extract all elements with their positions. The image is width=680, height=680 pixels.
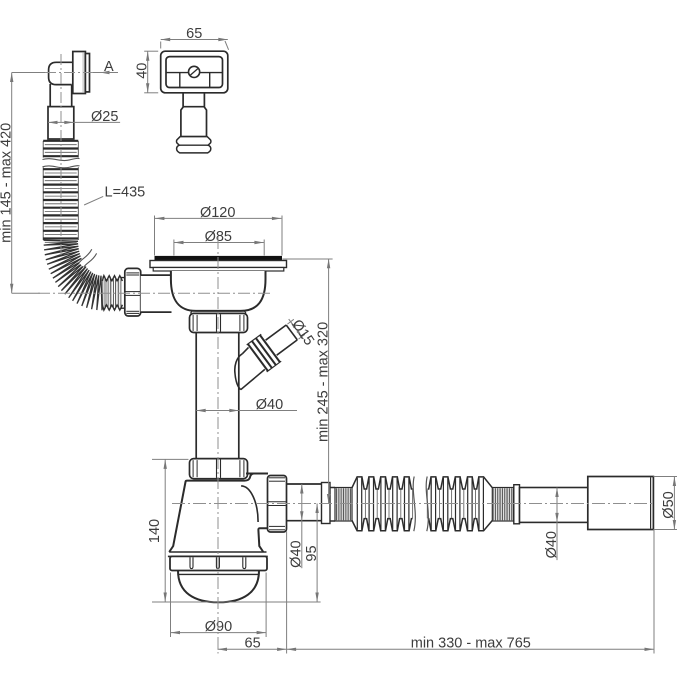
svg-text:Ø40: Ø40 bbox=[289, 540, 305, 567]
svg-text:min 330 - max 765: min 330 - max 765 bbox=[411, 636, 531, 652]
svg-text:65: 65 bbox=[245, 636, 261, 652]
svg-text:40: 40 bbox=[135, 63, 151, 79]
svg-text:Ø40: Ø40 bbox=[256, 397, 283, 413]
svg-text:95: 95 bbox=[304, 545, 320, 561]
svg-text:Ø120: Ø120 bbox=[200, 205, 235, 221]
svg-text:140: 140 bbox=[147, 519, 163, 543]
svg-text:Ø50: Ø50 bbox=[661, 491, 677, 518]
svg-text:Ø25: Ø25 bbox=[91, 109, 118, 125]
svg-text:L=435: L=435 bbox=[105, 185, 146, 201]
svg-text:Ø40: Ø40 bbox=[544, 531, 560, 558]
svg-text:min 245 - max 320: min 245 - max 320 bbox=[315, 322, 331, 442]
svg-text:min 145 - max 420: min 145 - max 420 bbox=[0, 123, 15, 243]
svg-text:65: 65 bbox=[186, 26, 202, 42]
